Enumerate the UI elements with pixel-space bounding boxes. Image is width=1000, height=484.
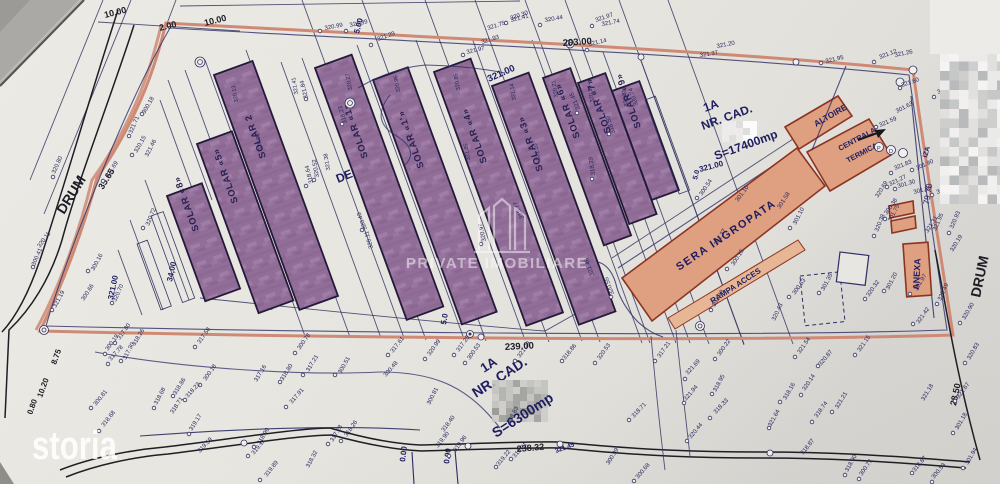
svg-text:storia: storia <box>32 423 118 468</box>
svg-text:P: P <box>877 146 881 152</box>
svg-text:D: D <box>889 149 893 155</box>
svg-text:PRIVATE IMOBILIARE: PRIVATE IMOBILIARE <box>406 255 588 272</box>
